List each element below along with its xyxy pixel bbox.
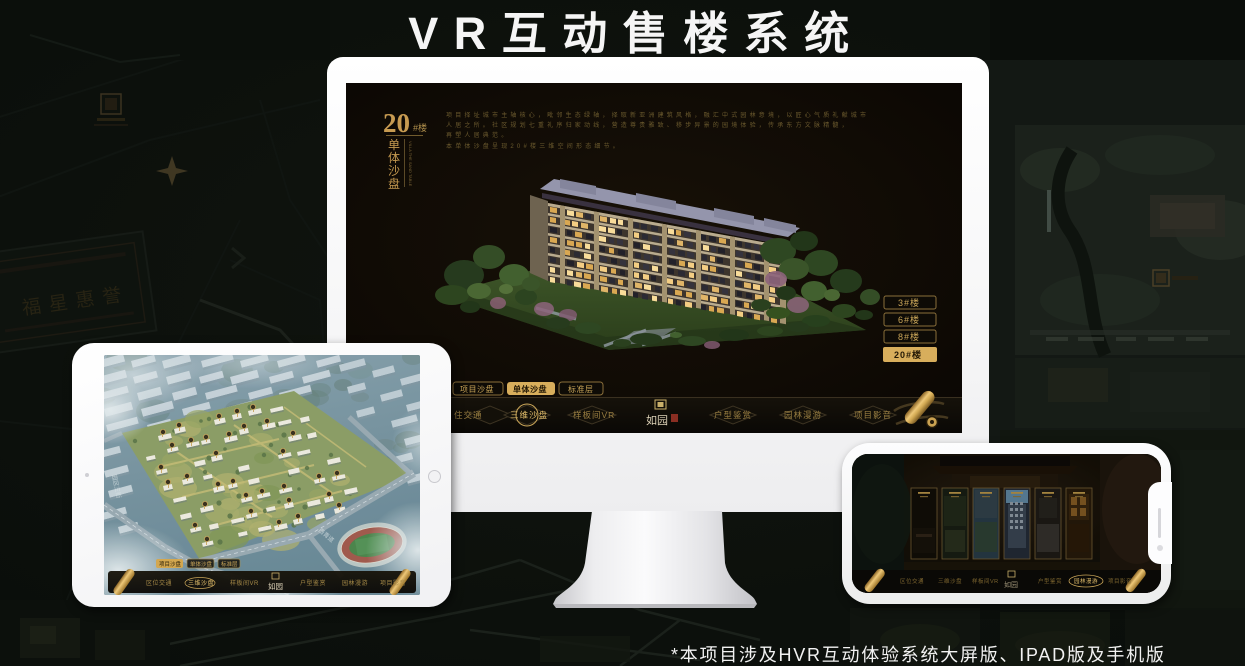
svg-text:项目影音: 项目影音 bbox=[380, 579, 406, 587]
svg-text:三维沙盘: 三维沙盘 bbox=[510, 410, 548, 420]
svg-text:单体沙盘: 单体沙盘 bbox=[190, 560, 213, 568]
svg-text:如园: 如园 bbox=[268, 581, 283, 591]
svg-text:项目影音: 项目影音 bbox=[1108, 577, 1132, 585]
svg-text:20: 20 bbox=[383, 108, 410, 138]
svg-text:人居之所。社区规划七重礼序归家动线，营造尊贵雅致、移步异景的: 人居之所。社区规划七重礼序归家动线，营造尊贵雅致、移步异景的园境体验，传承东方文… bbox=[446, 121, 851, 129]
svg-text:标准层: 标准层 bbox=[568, 384, 594, 394]
svg-text:标准层: 标准层 bbox=[221, 560, 238, 568]
svg-text:如园: 如园 bbox=[1004, 580, 1018, 589]
svg-text:三维沙盘: 三维沙盘 bbox=[188, 579, 214, 587]
svg-text:园林漫游: 园林漫游 bbox=[1074, 577, 1098, 585]
svg-text:如园: 如园 bbox=[646, 413, 668, 427]
svg-text:户型鉴赏: 户型鉴赏 bbox=[1038, 577, 1062, 585]
svg-text:3#楼: 3#楼 bbox=[898, 297, 920, 308]
svg-text:区位交通: 区位交通 bbox=[146, 579, 172, 587]
svg-text:单体沙盘: 单体沙盘 bbox=[513, 384, 547, 394]
svg-text:园林漫游: 园林漫游 bbox=[784, 410, 822, 420]
svg-text:项目沙盘: 项目沙盘 bbox=[159, 560, 182, 568]
svg-text:户型鉴赏: 户型鉴赏 bbox=[300, 579, 326, 587]
svg-text:户型鉴赏: 户型鉴赏 bbox=[714, 410, 752, 420]
svg-text:沙: 沙 bbox=[388, 164, 400, 178]
svg-text:项目择址城市主轴核心，毗邻生态绿轴，择取新亚洲建筑风格，融汇: 项目择址城市主轴核心，毗邻生态绿轴，择取新亚洲建筑风格，融汇中式园林意境，以匠心… bbox=[446, 111, 869, 119]
svg-text:盘: 盘 bbox=[388, 176, 400, 191]
svg-text:样板间VR: 样板间VR bbox=[230, 579, 259, 587]
svg-text:VILLA THE SAND TABLE: VILLA THE SAND TABLE bbox=[408, 141, 413, 187]
svg-text:本单体沙盘呈现20#楼三维空间形态细节。: 本单体沙盘呈现20#楼三维空间形态细节。 bbox=[446, 142, 622, 150]
svg-text:项目沙盘: 项目沙盘 bbox=[460, 384, 494, 394]
svg-text:园林漫游: 园林漫游 bbox=[342, 579, 368, 587]
svg-text:样板间VR: 样板间VR bbox=[972, 577, 999, 585]
svg-text:区位交通: 区位交通 bbox=[900, 577, 924, 585]
svg-text:再塑人居典范。: 再塑人居典范。 bbox=[446, 131, 510, 139]
svg-text:体: 体 bbox=[388, 151, 400, 165]
svg-text:单: 单 bbox=[388, 138, 400, 152]
svg-text:项目影音: 项目影音 bbox=[854, 410, 892, 420]
svg-text:#楼: #楼 bbox=[413, 122, 427, 133]
svg-text:三维沙盘: 三维沙盘 bbox=[938, 577, 962, 585]
svg-text:样板间VR: 样板间VR bbox=[573, 410, 615, 420]
svg-text:6#楼: 6#楼 bbox=[898, 314, 920, 325]
svg-text:20#楼: 20#楼 bbox=[894, 349, 922, 360]
svg-text:8#楼: 8#楼 bbox=[898, 331, 920, 342]
svg-text:住交通: 住交通 bbox=[454, 410, 483, 420]
